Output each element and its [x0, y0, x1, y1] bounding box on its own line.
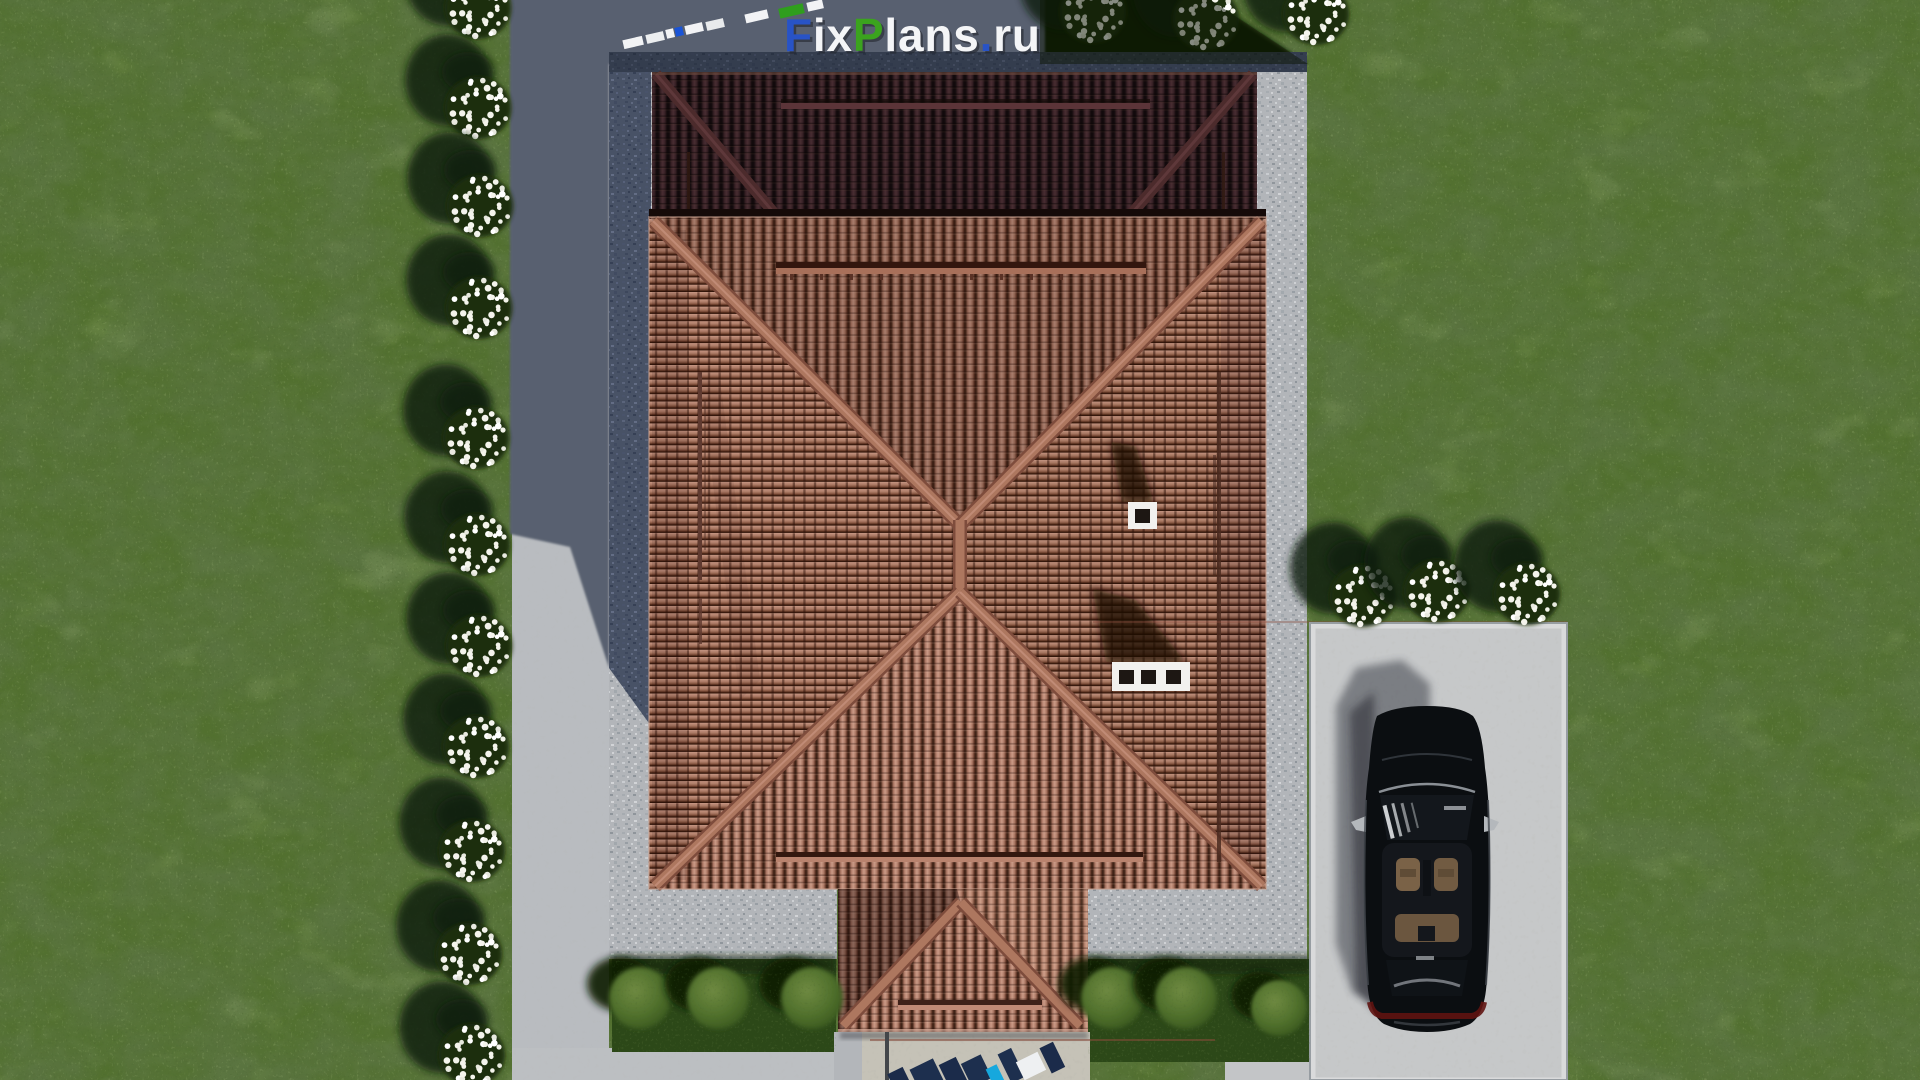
svg-text:FixPlans.ru: FixPlans.ru	[784, 9, 1041, 61]
